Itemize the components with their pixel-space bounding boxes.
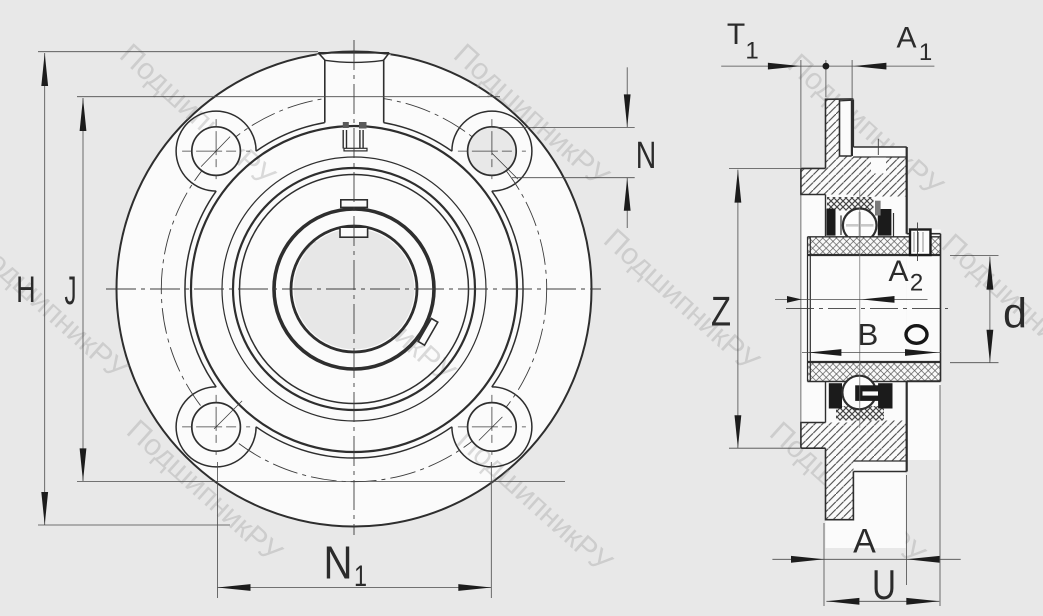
svg-text:T: T	[727, 18, 745, 51]
svg-text:1: 1	[919, 39, 932, 66]
svg-text:J: J	[65, 269, 77, 313]
svg-text:1: 1	[745, 38, 758, 65]
svg-text:N: N	[636, 135, 657, 177]
svg-text:U: U	[872, 561, 896, 608]
svg-text:B: B	[858, 317, 879, 352]
svg-text:1: 1	[354, 560, 367, 593]
svg-text:A: A	[888, 255, 908, 288]
svg-text:2: 2	[910, 270, 923, 297]
svg-text:Z: Z	[711, 287, 731, 334]
svg-text:A: A	[853, 522, 876, 560]
svg-text:d: d	[1003, 290, 1027, 337]
svg-text:A: A	[896, 21, 916, 54]
svg-text:H: H	[16, 269, 36, 310]
svg-text:N: N	[324, 537, 353, 589]
